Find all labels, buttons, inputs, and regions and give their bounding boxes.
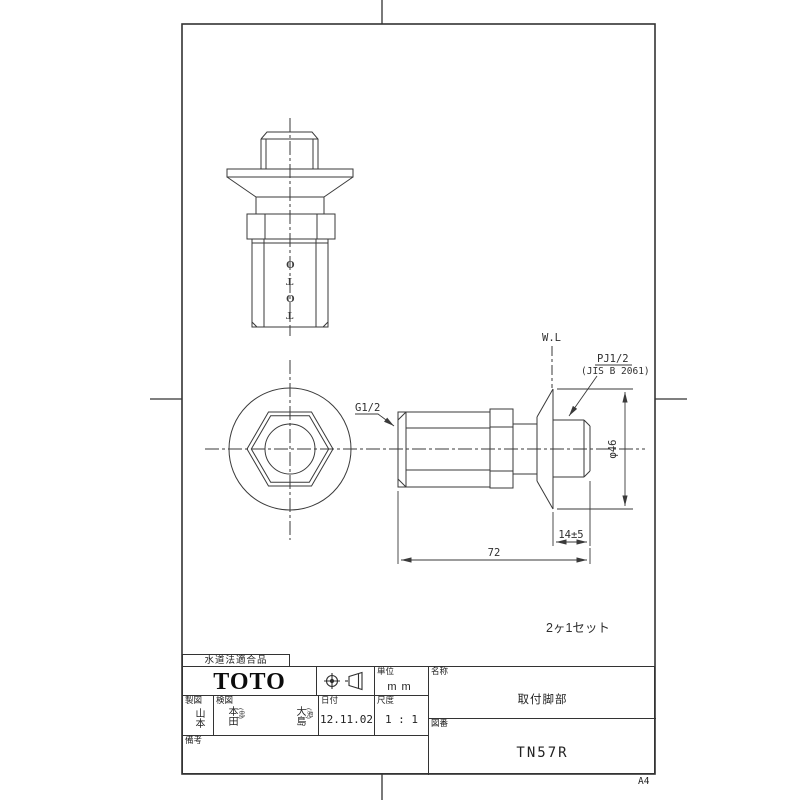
unit-value: mm bbox=[375, 681, 428, 693]
pj-standard-label: (JIS B 2061) bbox=[581, 366, 650, 377]
checking-cell: 検図 本田 (忠) 大島 (池) bbox=[214, 696, 319, 736]
checker-stamp-name: 本田 bbox=[226, 706, 237, 726]
water-line-label: W.L bbox=[542, 332, 561, 344]
part-name-cell: 名称 取付脚部 bbox=[429, 667, 656, 719]
unit-label: 単位 bbox=[377, 667, 394, 676]
checker-stamp-name: 大島 bbox=[294, 706, 305, 726]
set-note: 2ヶ1セット bbox=[546, 621, 610, 635]
drafting-name: 山本 bbox=[193, 708, 204, 728]
title-block: TOTO 単位 mm 製図 山本 検図 本田 (忠) 大島 (池) bbox=[182, 666, 655, 774]
part-name-value: 取付脚部 bbox=[429, 691, 656, 707]
logo-cell: TOTO bbox=[183, 667, 317, 696]
drafting-label: 製図 bbox=[185, 696, 202, 705]
drawing-number-label: 図番 bbox=[431, 719, 448, 728]
scale-cell: 尺度 1 : 1 bbox=[375, 696, 429, 736]
end-view bbox=[205, 360, 645, 540]
date-cell: 日付 12.11.02 bbox=[319, 696, 375, 736]
scale-value: 1 : 1 bbox=[375, 713, 428, 726]
unit-cell: 単位 mm bbox=[375, 667, 429, 696]
checker-stamp-sub: (池) bbox=[305, 708, 312, 726]
remarks-label: 備考 bbox=[185, 736, 202, 745]
side-view bbox=[398, 346, 590, 509]
engraving-letter: T bbox=[286, 275, 293, 286]
date-value: 12.11.02 bbox=[319, 713, 374, 726]
front-view-engraving: OTOT bbox=[276, 258, 304, 320]
drafting-cell: 製図 山本 bbox=[183, 696, 214, 736]
remarks-cell: 備考 bbox=[183, 736, 429, 775]
checker-stamp: 本田 (忠) bbox=[226, 706, 244, 726]
engraving-letter: T bbox=[286, 309, 293, 320]
pj-thread-label: PJ1/2 bbox=[597, 353, 629, 365]
dimension-lines bbox=[355, 365, 633, 564]
engraving-letter: O bbox=[286, 292, 295, 303]
engraving-letter: O bbox=[286, 258, 295, 269]
drawing-number-cell: 図番 TN57R bbox=[429, 719, 656, 775]
third-angle-projection-icon bbox=[317, 667, 373, 694]
flange-diameter-dim: φ46 bbox=[607, 440, 619, 459]
toto-logo: TOTO bbox=[183, 669, 316, 696]
checker-stamp: 大島 (池) bbox=[294, 706, 312, 726]
total-length-dim: 72 bbox=[488, 547, 501, 559]
date-label: 日付 bbox=[321, 696, 338, 705]
projection-symbol-cell bbox=[317, 667, 375, 696]
scale-label: 尺度 bbox=[377, 696, 394, 705]
compliance-label: 水道法適合品 bbox=[204, 655, 267, 666]
checking-label: 検図 bbox=[216, 696, 233, 705]
drawing-number-value: TN57R bbox=[429, 745, 656, 761]
checker-stamp-sub: (忠) bbox=[237, 708, 244, 726]
paper-size-label: A4 bbox=[638, 776, 649, 787]
drawing-sheet: W.L G1/2 PJ1/2 (JIS B 2061) φ46 14±5 72 … bbox=[0, 0, 800, 800]
part-name-label: 名称 bbox=[431, 667, 448, 676]
g-thread-label: G1/2 bbox=[355, 402, 380, 414]
plug-length-dim: 14±5 bbox=[558, 529, 583, 541]
